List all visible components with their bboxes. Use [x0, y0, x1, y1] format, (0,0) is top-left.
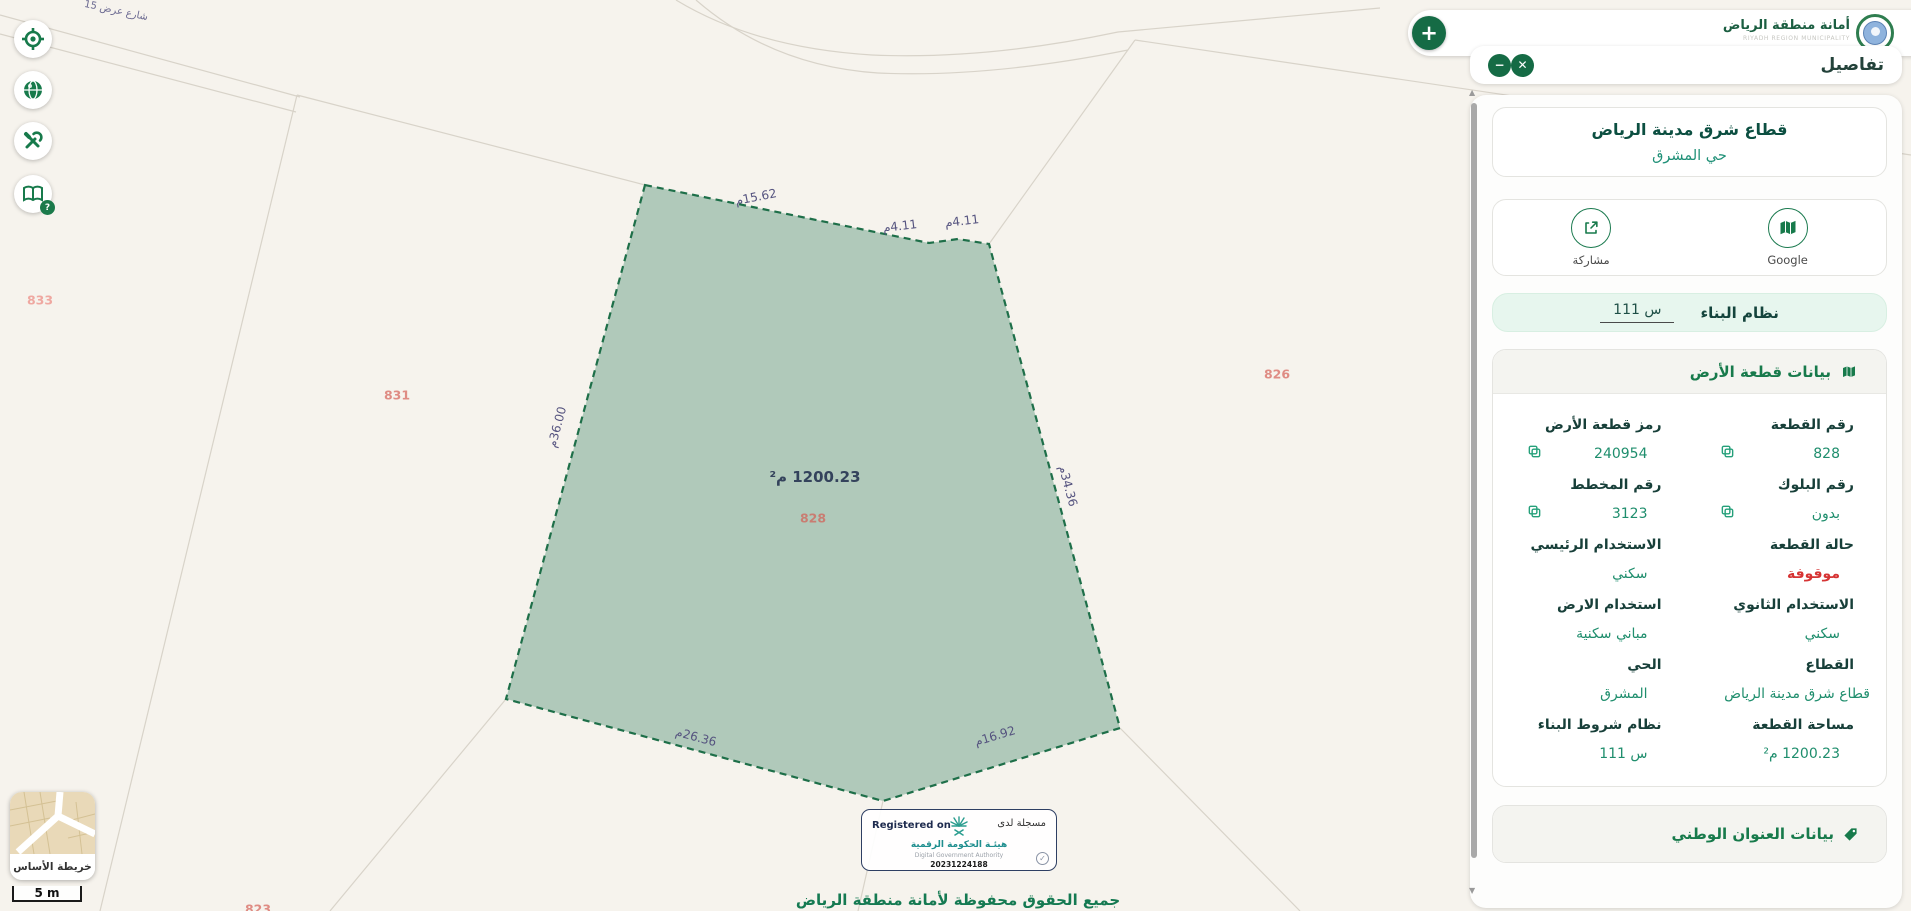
parcel-number-828: 828 — [800, 511, 826, 526]
field-value: 240954 — [1497, 442, 1690, 472]
field-value: 1200.23 م² — [1690, 742, 1883, 772]
field-main-use: الاستخدام الرئيسي سكني — [1497, 532, 1690, 592]
google-maps-icon — [1768, 208, 1808, 248]
field-parcel-code: رمز قطعة الأرض 240954 — [1497, 412, 1690, 472]
registration-number: 20231224188 — [862, 860, 1056, 869]
dga-name-english: Digital Government Authority — [862, 852, 1056, 859]
basemap-globe-button[interactable] — [14, 71, 52, 109]
close-button[interactable]: ✕ — [1511, 54, 1534, 77]
locate-button[interactable] — [14, 20, 52, 58]
land-fields-grid: رقم القطعة 828 رمز قطعة الأرض 240954 رقم… — [1493, 394, 1886, 786]
field-value: مباني سكنية — [1497, 622, 1690, 652]
field-parcel-number: رقم القطعة 828 — [1690, 412, 1883, 472]
field-value: سكني — [1497, 562, 1690, 592]
field-label: القطاع — [1690, 652, 1883, 682]
map-section-icon — [1840, 364, 1858, 380]
help-question-badge: ? — [40, 200, 55, 215]
national-address-header[interactable]: بيانات العنوان الوطني — [1493, 806, 1886, 862]
verified-check-icon: ✓ — [1036, 852, 1049, 865]
field-label: نظام شروط البناء — [1497, 712, 1690, 742]
municipality-name-ar: أمانة منطقة الرياض — [1723, 18, 1850, 33]
field-label: رقم البلوك — [1690, 472, 1883, 502]
selected-parcel-polygon[interactable] — [506, 185, 1120, 801]
tools-button[interactable] — [14, 122, 52, 160]
details-header-bar: تفاصيل ✕ − — [1470, 46, 1902, 84]
share-icon — [1571, 208, 1611, 248]
share-label: مشاركة — [1573, 253, 1610, 267]
dga-name-arabic: هيئـة الحكومة الرقمية — [862, 840, 1056, 850]
field-sector: القطاع قطاع شرق مدينة الرياض — [1690, 652, 1883, 712]
registered-ar-text: مسجلة لدى — [997, 818, 1046, 829]
field-value-status: موقوفة — [1690, 562, 1883, 592]
field-value: 3123 — [1497, 502, 1690, 532]
dga-registration-badge: Registered on مسجلة لدى هيئـة الحكومة ال… — [861, 809, 1057, 871]
minimize-button[interactable]: − — [1488, 54, 1511, 77]
basemap-thumbnail — [10, 792, 95, 854]
district-subtitle: حي المشرق — [1493, 148, 1886, 164]
building-system-value-link[interactable]: س 111 — [1600, 302, 1674, 323]
field-label: رقم المخطط — [1497, 472, 1690, 502]
locate-icon — [21, 27, 45, 51]
field-parcel-area: مساحة القطعة 1200.23 م² — [1690, 712, 1883, 772]
field-secondary-use: الاستخدام الثانوي سكني — [1690, 592, 1883, 652]
copyright-text: جميع الحقوق محفوظة لأمانة منطقة الرياض — [796, 891, 1120, 909]
details-title: تفاصيل — [1543, 55, 1884, 75]
field-label: استخدام الارض — [1497, 592, 1690, 622]
field-plan-number: رقم المخطط 3123 — [1497, 472, 1690, 532]
tools-icon — [21, 129, 45, 153]
details-panel: قطاع شرق مدينة الرياض حي المشرق Google م… — [1470, 95, 1902, 908]
field-block-number: رقم البلوك بدون — [1690, 472, 1883, 532]
copy-icon[interactable] — [1720, 444, 1735, 459]
field-building-conditions: نظام شروط البناء س 111 — [1497, 712, 1690, 772]
field-label: الحي — [1497, 652, 1690, 682]
field-value: المشرق — [1497, 682, 1690, 712]
municipality-name-en: RIYADH REGION MUNICIPALITY — [1723, 35, 1850, 42]
copy-icon[interactable] — [1720, 504, 1735, 519]
basemap-label: خريطة الأساس — [10, 854, 95, 880]
scroll-up-arrow[interactable]: ▲ — [1469, 88, 1475, 97]
app-root: { "map": { "street": "شارع عرض 15", "are… — [0, 0, 1911, 911]
field-land-use: استخدام الارض مباني سكنية — [1497, 592, 1690, 652]
panel-scrollbar-thumb[interactable] — [1471, 103, 1477, 858]
field-label: الاستخدام الرئيسي — [1497, 532, 1690, 562]
globe-icon — [22, 79, 44, 101]
building-system-label: نظام البناء — [1700, 304, 1778, 322]
field-value: س 111 — [1497, 742, 1690, 772]
copy-icon[interactable] — [1527, 504, 1542, 519]
field-label: رقم القطعة — [1690, 412, 1883, 442]
building-system-banner: نظام البناء س 111 — [1492, 293, 1887, 332]
scale-text: 5 m — [34, 886, 59, 900]
add-button[interactable]: + — [1412, 16, 1446, 50]
parcel-number-826: 826 — [1264, 367, 1290, 382]
dga-logo-icon — [946, 813, 972, 839]
parcel-area-label: 1200.23 م² — [769, 468, 860, 486]
actions-card: Google مشاركة — [1492, 199, 1887, 276]
parcel-number-831: 831 — [384, 388, 410, 403]
national-address-title: بيانات العنوان الوطني — [1672, 825, 1835, 843]
google-maps-button[interactable]: Google — [1767, 208, 1808, 267]
field-label: حالة القطعة — [1690, 532, 1883, 562]
field-value: سكني — [1690, 622, 1883, 652]
legend-help-button[interactable]: ? — [14, 175, 52, 213]
national-address-section: بيانات العنوان الوطني — [1492, 805, 1887, 863]
basemap-switcher[interactable]: خريطة الأساس — [10, 792, 95, 880]
scroll-down-arrow[interactable]: ▼ — [1469, 886, 1475, 895]
field-value: قطاع شرق مدينة الرياض — [1690, 682, 1883, 712]
location-title-card: قطاع شرق مدينة الرياض حي المشرق — [1492, 107, 1887, 177]
field-label: الاستخدام الثانوي — [1690, 592, 1883, 622]
field-value: بدون — [1690, 502, 1883, 532]
registered-on-text: Registered on — [872, 820, 951, 831]
tag-icon — [1843, 827, 1858, 842]
sector-title: قطاع شرق مدينة الرياض — [1493, 120, 1886, 139]
share-button[interactable]: مشاركة — [1571, 208, 1611, 267]
land-data-title: بيانات قطعة الأرض — [1690, 363, 1831, 381]
parcel-number-833: 833 — [27, 293, 53, 308]
field-district: الحي المشرق — [1497, 652, 1690, 712]
field-value: 828 — [1690, 442, 1883, 472]
land-data-section: بيانات قطعة الأرض رقم القطعة 828 رمز قطع… — [1492, 349, 1887, 787]
land-data-header[interactable]: بيانات قطعة الأرض — [1493, 350, 1886, 394]
field-label: مساحة القطعة — [1690, 712, 1883, 742]
field-label: رمز قطعة الأرض — [1497, 412, 1690, 442]
scale-bar: 5 m — [12, 886, 82, 902]
parcel-number-823-clipped: 823 — [245, 902, 271, 911]
google-maps-label: Google — [1767, 253, 1808, 267]
field-parcel-status: حالة القطعة موقوفة — [1690, 532, 1883, 592]
copy-icon[interactable] — [1527, 444, 1542, 459]
